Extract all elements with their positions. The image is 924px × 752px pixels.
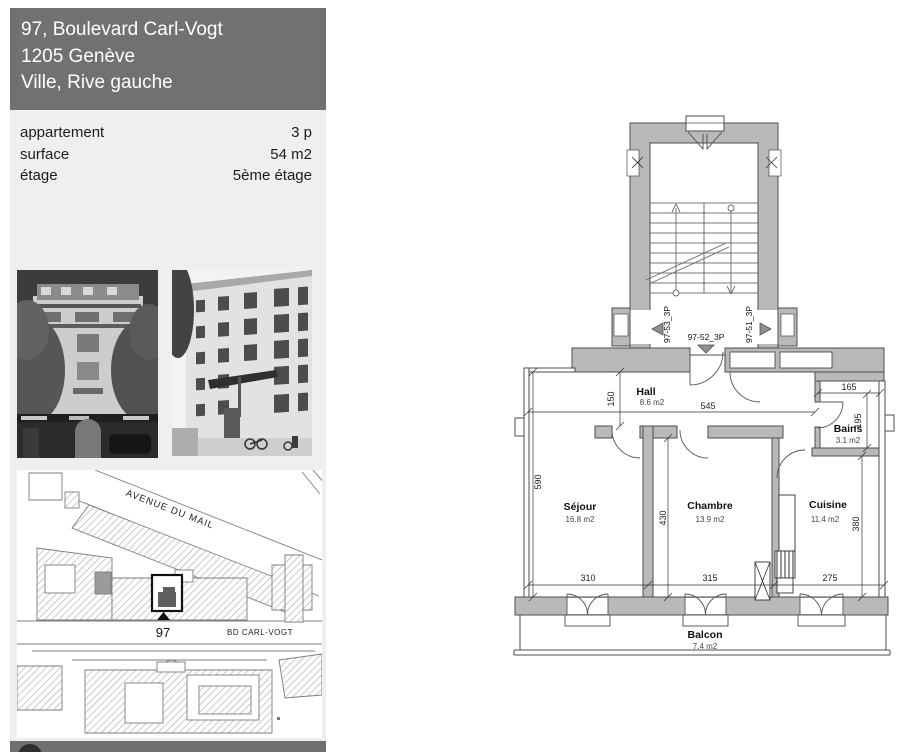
stairwell: 97-53_3P 97-51_3P 97-52_3P	[612, 116, 797, 355]
detail-value: 3 p	[291, 122, 312, 144]
hall-closets	[730, 352, 832, 368]
detail-row-appartement: appartement 3 p	[20, 122, 312, 144]
room-sejour-area: 16.8 m2	[566, 515, 595, 524]
address-header: 97, Boulevard Carl-Vogt 1205 Genève Vill…	[10, 8, 326, 110]
address-line2: 1205 Genève	[21, 44, 316, 71]
map-street-bd-carl-vogt: BD CARL-VOGT	[227, 628, 293, 637]
room-balcon-area: 7.4 m2	[693, 642, 718, 651]
unit-label-97-52: 97-52_3P	[688, 332, 725, 342]
address-line1: 97, Boulevard Carl-Vogt	[21, 17, 316, 44]
building-photo-2	[172, 270, 312, 456]
map-highlighted-building	[152, 575, 182, 611]
dim-hall-width: 545	[700, 401, 715, 411]
sejour-door-arc	[612, 430, 640, 458]
detail-value: 54 m2	[270, 144, 312, 166]
room-chambre-area: 13.9 m2	[696, 515, 725, 524]
dim-hall-depth: 150	[606, 391, 616, 406]
unit-label-97-51: 97-51_3P	[744, 306, 754, 343]
apartment-details: appartement 3 p surface 54 m2 étage 5ème…	[20, 122, 312, 187]
room-sejour-name: Séjour	[564, 501, 597, 513]
address-line3: Ville, Rive gauche	[21, 70, 316, 97]
room-cuisine-area: 11.4 m2	[811, 515, 840, 524]
room-bains-name: Bains	[834, 423, 863, 435]
detail-row-surface: surface 54 m2	[20, 144, 312, 166]
dim-sejour-width: 310	[580, 573, 595, 583]
detail-label: appartement	[20, 122, 104, 144]
detail-value: 5ème étage	[233, 165, 312, 187]
agency-logo-icon	[18, 744, 42, 752]
dim-bains-width: 165	[841, 382, 856, 392]
chambre-door-arc	[680, 430, 708, 458]
building-photo-1	[17, 270, 158, 458]
detail-label: surface	[20, 144, 69, 166]
room-hall-area: 8.6 m2	[640, 398, 665, 407]
room-chambre-name: Chambre	[687, 500, 733, 512]
corridor-door-arc	[730, 372, 760, 402]
footer-bar	[10, 741, 326, 752]
detail-label: étage	[20, 165, 58, 187]
cuisine-door-arc	[777, 450, 805, 478]
situation-map: 97 BD CARL-VOGT AVENUE DU MAIL	[17, 470, 322, 738]
listing-sidebar: 97, Boulevard Carl-Vogt 1205 Genève Vill…	[10, 8, 326, 752]
room-hall-name: Hall	[636, 386, 655, 398]
building-photos	[17, 270, 319, 458]
dim-cuisine-width: 275	[822, 573, 837, 583]
room-bains-area: 3.1 m2	[836, 436, 861, 445]
dim-sejour-height: 590	[533, 474, 543, 489]
dim-chambre-height: 430	[658, 510, 668, 525]
duct-shaft	[755, 562, 770, 600]
dim-chambre-width: 315	[702, 573, 717, 583]
floor-plan: 97-53_3P 97-51_3P 97-52_3P	[500, 110, 924, 670]
map-building-number: 97	[156, 625, 170, 640]
entry-door-arc	[690, 352, 723, 385]
room-balcon-name: Balcon	[687, 629, 722, 641]
unit-label-97-53: 97-53_3P	[662, 306, 672, 343]
detail-row-etage: étage 5ème étage	[20, 165, 312, 187]
room-cuisine-name: Cuisine	[809, 499, 847, 511]
balcony-windows	[565, 594, 845, 626]
dim-cuisine-height: 380	[851, 516, 861, 531]
